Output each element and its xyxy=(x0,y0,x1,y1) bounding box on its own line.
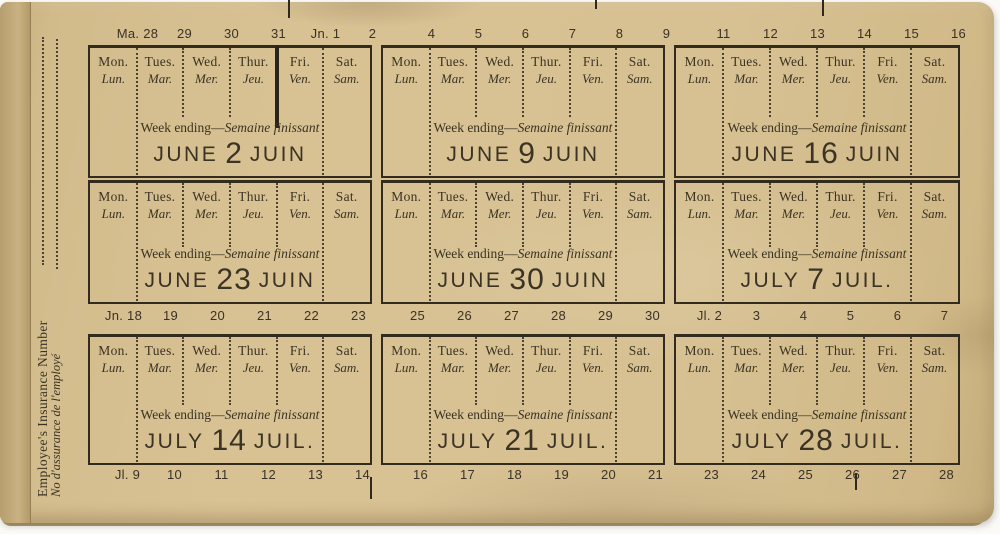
dotted-leader-line xyxy=(56,39,58,269)
week-ending-month-en: JULY xyxy=(438,430,498,453)
day-name-en: Tues. xyxy=(430,343,477,359)
insurance-number-label-fr: No d'assurance de l'employé xyxy=(50,261,63,497)
week-ending-label: Week ending—Semaine finissantJUNE16JUIN xyxy=(707,120,927,171)
week-ending-month-en: JUNE xyxy=(438,269,503,292)
day-name-fr: Lun. xyxy=(90,71,137,87)
week-ending-date: JUNE2JUIN xyxy=(121,137,339,171)
date-label: 20 xyxy=(585,467,632,487)
date-label: 12 xyxy=(747,26,794,46)
day-name-fr: Jeu. xyxy=(817,71,864,87)
date-label: 30 xyxy=(629,308,676,328)
week-ending-date: JUNE16JUIN xyxy=(707,137,927,171)
day-name-en: Mon. xyxy=(676,189,723,205)
date-label: 22 xyxy=(288,308,335,328)
date-label: 20 xyxy=(194,308,241,328)
date-label: 7 xyxy=(921,308,968,328)
day-name-en: Fri. xyxy=(570,343,617,359)
week-ending-month-en: JUNE xyxy=(153,143,218,166)
day-name-en: Fri. xyxy=(864,343,911,359)
date-label: 14 xyxy=(841,26,888,46)
day-name-fr: Ven. xyxy=(570,206,617,222)
week-block-4: Mon.Lun.Tues.Mar.Wed.Mer.Thur.Jeu.Fri.Ve… xyxy=(88,180,372,304)
date-label: Jn. 1 xyxy=(302,26,349,46)
date-label: 4 xyxy=(408,26,455,46)
day-name-en: Thur. xyxy=(230,54,277,70)
day-name-fr: Sam. xyxy=(323,71,370,87)
day-name-en: Wed. xyxy=(183,54,230,70)
day-name-en: Thur. xyxy=(230,189,277,205)
week-ending-caption: Week ending—Semaine finissant xyxy=(414,120,632,136)
week-ending-caption-fr: Semaine finissant xyxy=(518,246,613,261)
week-ending-caption: Week ending—Semaine finissant xyxy=(121,120,339,136)
date-label: 5 xyxy=(455,26,502,46)
week-ending-caption-en: Week ending xyxy=(141,407,212,422)
day-name-fr: Lun. xyxy=(676,206,723,222)
day-name-en: Thur. xyxy=(230,343,277,359)
day-name-fr: Lun. xyxy=(676,71,723,87)
date-label: 17 xyxy=(444,467,491,487)
day-name-fr: Sam. xyxy=(616,206,663,222)
date-strip-bottom-segment-1: Jl. 91011121314 xyxy=(104,467,386,487)
week-ending-month-en: JULY xyxy=(732,430,792,453)
date-label: 3 xyxy=(733,308,780,328)
date-label: 26 xyxy=(829,467,876,487)
date-label: 19 xyxy=(147,308,194,328)
day-name-fr: Lun. xyxy=(383,360,430,376)
day-name-fr: Lun. xyxy=(90,206,137,222)
day-name-fr: Mer. xyxy=(770,360,817,376)
day-name-en: Tues. xyxy=(723,343,770,359)
date-label: 16 xyxy=(397,467,444,487)
date-label: 16 xyxy=(935,26,982,46)
week-ending-caption-en: Week ending xyxy=(728,246,799,261)
date-label: Jl. 9 xyxy=(104,467,151,487)
date-label: 6 xyxy=(502,26,549,46)
day-name-fr: Mar. xyxy=(723,71,770,87)
week-block-8: Mon.Lun.Tues.Mar.Wed.Mer.Thur.Jeu.Fri.Ve… xyxy=(381,334,665,465)
date-label: 2 xyxy=(349,26,396,46)
date-strip-top-segment-2: 456789 xyxy=(408,26,690,46)
week-ending-day: 9 xyxy=(518,137,536,170)
week-ending-label: Week ending—Semaine finissantJULY14JUIL. xyxy=(121,407,339,458)
week-ending-day: 16 xyxy=(803,137,838,170)
day-name-fr: Mar. xyxy=(430,206,477,222)
day-name-en: Sat. xyxy=(616,54,663,70)
week-ending-month-fr: JUIL. xyxy=(832,269,894,292)
week-ending-month-en: JULY xyxy=(145,430,205,453)
day-name-fr: Jeu. xyxy=(230,206,277,222)
week-ending-caption-dash: — xyxy=(798,407,812,422)
day-name-en: Tues. xyxy=(137,343,184,359)
day-name-en: Wed. xyxy=(476,343,523,359)
week-ending-day: 23 xyxy=(216,263,251,296)
week-ending-month-en: JUNE xyxy=(145,269,210,292)
day-name-fr: Sam. xyxy=(616,71,663,87)
week-ending-caption-dash: — xyxy=(798,120,812,135)
week-ending-day: 30 xyxy=(509,263,544,296)
day-name-en: Wed. xyxy=(770,189,817,205)
date-label: 21 xyxy=(241,308,288,328)
date-label: 29 xyxy=(161,26,208,46)
day-name-fr: Ven. xyxy=(864,71,911,87)
week-ending-day: 21 xyxy=(504,424,539,457)
week-ending-caption: Week ending—Semaine finissant xyxy=(707,407,927,423)
day-name-fr: Ven. xyxy=(277,206,324,222)
date-label: 26 xyxy=(441,308,488,328)
day-name-en: Sat. xyxy=(616,189,663,205)
week-ending-label: Week ending—Semaine finissantJUNE2JUIN xyxy=(121,120,339,171)
week-ending-month-en: JUNE xyxy=(732,143,797,166)
date-label: 29 xyxy=(582,308,629,328)
date-label: 6 xyxy=(874,308,921,328)
week-ending-caption: Week ending—Semaine finissant xyxy=(707,120,927,136)
week-ending-caption-fr: Semaine finissant xyxy=(225,407,320,422)
week-ending-caption-dash: — xyxy=(798,246,812,261)
day-name-en: Wed. xyxy=(476,189,523,205)
day-name-en: Mon. xyxy=(90,54,137,70)
day-name-en: Thur. xyxy=(817,54,864,70)
month-boundary-line xyxy=(275,46,279,128)
week-ending-caption-dash: — xyxy=(504,120,518,135)
day-name-fr: Ven. xyxy=(864,206,911,222)
date-strip-top-segment-3: 111213141516 xyxy=(700,26,982,46)
day-name-en: Thur. xyxy=(523,189,570,205)
day-name-fr: Mer. xyxy=(183,360,230,376)
day-name-fr: Ven. xyxy=(277,71,324,87)
day-name-en: Wed. xyxy=(183,189,230,205)
day-name-fr: Sam. xyxy=(911,360,958,376)
week-ending-day: 7 xyxy=(807,263,825,296)
week-ending-date: JUNE23JUIN xyxy=(121,263,339,297)
week-ending-caption-dash: — xyxy=(211,120,225,135)
date-strip-middle-segment-1: Jn. 181920212223 xyxy=(100,308,382,328)
week-ending-caption: Week ending—Semaine finissant xyxy=(414,407,632,423)
day-name-en: Mon. xyxy=(90,189,137,205)
week-ending-day: 28 xyxy=(798,424,833,457)
day-name-fr: Lun. xyxy=(383,206,430,222)
week-block-3: Mon.Lun.Tues.Mar.Wed.Mer.Thur.Jeu.Fri.Ve… xyxy=(674,45,960,178)
date-label: 15 xyxy=(888,26,935,46)
date-label: 25 xyxy=(394,308,441,328)
date-label: 21 xyxy=(632,467,679,487)
registration-tick xyxy=(822,0,824,16)
week-ending-caption-en: Week ending xyxy=(434,407,505,422)
week-ending-month-fr: JUIL. xyxy=(547,430,609,453)
day-name-fr: Sam. xyxy=(911,206,958,222)
date-label: 12 xyxy=(245,467,292,487)
week-ending-day: 2 xyxy=(225,137,243,170)
week-ending-caption-dash: — xyxy=(211,246,225,261)
day-name-en: Wed. xyxy=(183,343,230,359)
week-ending-label: Week ending—Semaine finissantJULY28JUIL. xyxy=(707,407,927,458)
day-name-fr: Mer. xyxy=(183,71,230,87)
date-strip-bottom-segment-3: 232425262728 xyxy=(688,467,970,487)
week-ending-caption-fr: Semaine finissant xyxy=(812,407,907,422)
day-name-fr: Lun. xyxy=(90,360,137,376)
date-label: 8 xyxy=(596,26,643,46)
week-ending-month-fr: JUIN xyxy=(552,269,609,292)
week-ending-date: JULY21JUIL. xyxy=(414,424,632,458)
week-ending-date: JULY28JUIL. xyxy=(707,424,927,458)
week-block-1: Mon.Lun.Tues.Mar.Wed.Mer.Thur.Jeu.Fri.Ve… xyxy=(88,45,372,178)
day-name-fr: Sam. xyxy=(911,71,958,87)
week-ending-caption-fr: Semaine finissant xyxy=(518,407,613,422)
day-name-en: Mon. xyxy=(383,189,430,205)
date-label: 13 xyxy=(794,26,841,46)
day-name-en: Tues. xyxy=(723,189,770,205)
week-ending-caption-dash: — xyxy=(211,407,225,422)
day-name-en: Wed. xyxy=(476,54,523,70)
week-ending-caption-en: Week ending xyxy=(141,246,212,261)
week-ending-caption-en: Week ending xyxy=(728,120,799,135)
week-ending-caption-en: Week ending xyxy=(434,120,505,135)
date-label: 14 xyxy=(339,467,386,487)
day-name-en: Sat. xyxy=(911,189,958,205)
week-ending-label: Week ending—Semaine finissantJULY21JUIL. xyxy=(414,407,632,458)
day-name-en: Fri. xyxy=(864,54,911,70)
day-name-fr: Jeu. xyxy=(230,71,277,87)
week-ending-caption-fr: Semaine finissant xyxy=(225,246,320,261)
week-ending-label: Week ending—Semaine finissantJUNE23JUIN xyxy=(121,246,339,297)
week-ending-caption-en: Week ending xyxy=(434,246,505,261)
day-name-en: Thur. xyxy=(817,189,864,205)
day-name-en: Mon. xyxy=(676,343,723,359)
day-name-fr: Mar. xyxy=(137,360,184,376)
scanned-insurance-book-page: Employee's Insurance Number No d'assuran… xyxy=(0,0,1000,534)
week-ending-day: 14 xyxy=(211,424,246,457)
date-label: 28 xyxy=(923,467,970,487)
date-strip-middle-segment-2: 252627282930 xyxy=(394,308,676,328)
week-ending-caption-fr: Semaine finissant xyxy=(225,120,320,135)
day-name-en: Sat. xyxy=(323,343,370,359)
week-ending-caption: Week ending—Semaine finissant xyxy=(707,246,927,262)
day-name-en: Tues. xyxy=(430,54,477,70)
day-name-fr: Ven. xyxy=(570,71,617,87)
date-label: 25 xyxy=(782,467,829,487)
day-name-fr: Mer. xyxy=(476,360,523,376)
date-label: 11 xyxy=(198,467,245,487)
week-ending-month-fr: JUIN xyxy=(250,143,307,166)
day-name-fr: Mer. xyxy=(476,206,523,222)
date-label: 30 xyxy=(208,26,255,46)
week-block-5: Mon.Lun.Tues.Mar.Wed.Mer.Thur.Jeu.Fri.Ve… xyxy=(381,180,665,304)
day-name-en: Wed. xyxy=(770,343,817,359)
day-name-en: Tues. xyxy=(137,189,184,205)
day-name-en: Fri. xyxy=(277,189,324,205)
date-label: 23 xyxy=(688,467,735,487)
date-label: 23 xyxy=(335,308,382,328)
week-block-9: Mon.Lun.Tues.Mar.Wed.Mer.Thur.Jeu.Fri.Ve… xyxy=(674,334,960,465)
week-ending-caption: Week ending—Semaine finissant xyxy=(414,246,632,262)
day-name-en: Thur. xyxy=(817,343,864,359)
week-block-2: Mon.Lun.Tues.Mar.Wed.Mer.Thur.Jeu.Fri.Ve… xyxy=(381,45,665,178)
insurance-number-label-en: Employee's Insurance Number xyxy=(36,261,50,497)
week-ending-caption-en: Week ending xyxy=(141,120,212,135)
date-label: Jn. 18 xyxy=(100,308,147,328)
date-label: Jl. 2 xyxy=(686,308,733,328)
day-name-en: Tues. xyxy=(723,54,770,70)
date-label: 10 xyxy=(151,467,198,487)
day-name-fr: Mer. xyxy=(183,206,230,222)
day-name-en: Mon. xyxy=(676,54,723,70)
week-ending-month-fr: JUIL. xyxy=(254,430,316,453)
date-label: 9 xyxy=(643,26,690,46)
registration-tick xyxy=(288,0,290,18)
day-name-en: Sat. xyxy=(323,189,370,205)
week-ending-date: JULY14JUIL. xyxy=(121,424,339,458)
day-name-en: Wed. xyxy=(770,54,817,70)
day-name-fr: Jeu. xyxy=(817,360,864,376)
day-name-en: Sat. xyxy=(911,54,958,70)
day-name-en: Mon. xyxy=(383,343,430,359)
day-name-en: Fri. xyxy=(277,343,324,359)
insurance-number-label: Employee's Insurance Number No d'assuran… xyxy=(36,261,63,497)
week-ending-date: JUNE9JUIN xyxy=(414,137,632,171)
week-ending-date: JULY7JUIL. xyxy=(707,263,927,297)
week-ending-label: Week ending—Semaine finissantJUNE30JUIN xyxy=(414,246,632,297)
day-name-en: Sat. xyxy=(616,343,663,359)
week-ending-month-fr: JUIL. xyxy=(841,430,903,453)
week-ending-label: Week ending—Semaine finissantJULY7JUIL. xyxy=(707,246,927,297)
day-name-en: Mon. xyxy=(90,343,137,359)
day-name-fr: Mar. xyxy=(723,360,770,376)
day-name-fr: Sam. xyxy=(323,206,370,222)
day-name-en: Sat. xyxy=(911,343,958,359)
day-name-fr: Mar. xyxy=(137,71,184,87)
day-name-fr: Mer. xyxy=(770,71,817,87)
day-name-fr: Sam. xyxy=(616,360,663,376)
week-block-7: Mon.Lun.Tues.Mar.Wed.Mer.Thur.Jeu.Fri.Ve… xyxy=(88,334,372,465)
date-label: 27 xyxy=(876,467,923,487)
week-ending-month-fr: JUIN xyxy=(259,269,316,292)
date-strip-top-segment-1: Ma. 28293031Jn. 12 xyxy=(114,26,396,46)
week-ending-caption-fr: Semaine finissant xyxy=(518,120,613,135)
date-label: 7 xyxy=(549,26,596,46)
registration-tick xyxy=(595,0,597,9)
day-name-fr: Mer. xyxy=(770,206,817,222)
date-label: 19 xyxy=(538,467,585,487)
week-ending-caption: Week ending—Semaine finissant xyxy=(121,407,339,423)
day-name-en: Fri. xyxy=(864,189,911,205)
week-ending-caption: Week ending—Semaine finissant xyxy=(121,246,339,262)
week-ending-label: Week ending—Semaine finissantJUNE9JUIN xyxy=(414,120,632,171)
date-label: 28 xyxy=(535,308,582,328)
day-name-fr: Lun. xyxy=(676,360,723,376)
day-name-fr: Jeu. xyxy=(817,206,864,222)
day-name-en: Tues. xyxy=(430,189,477,205)
day-name-en: Fri. xyxy=(570,189,617,205)
date-label: 24 xyxy=(735,467,782,487)
week-ending-date: JUNE30JUIN xyxy=(414,263,632,297)
date-label: 31 xyxy=(255,26,302,46)
week-ending-caption-fr: Semaine finissant xyxy=(812,246,907,261)
date-label: 18 xyxy=(491,467,538,487)
day-name-fr: Ven. xyxy=(570,360,617,376)
day-name-en: Thur. xyxy=(523,343,570,359)
day-name-fr: Jeu. xyxy=(523,360,570,376)
day-name-fr: Sam. xyxy=(323,360,370,376)
day-name-fr: Ven. xyxy=(864,360,911,376)
day-name-fr: Ven. xyxy=(277,360,324,376)
week-ending-caption-en: Week ending xyxy=(728,407,799,422)
day-name-fr: Jeu. xyxy=(523,71,570,87)
day-name-en: Mon. xyxy=(383,54,430,70)
week-ending-month-fr: JUIN xyxy=(543,143,600,166)
week-ending-caption-dash: — xyxy=(504,246,518,261)
day-name-fr: Mar. xyxy=(137,206,184,222)
date-label: 13 xyxy=(292,467,339,487)
day-name-fr: Mer. xyxy=(476,71,523,87)
day-name-en: Fri. xyxy=(277,54,324,70)
date-label: 5 xyxy=(827,308,874,328)
day-name-fr: Jeu. xyxy=(230,360,277,376)
day-name-en: Tues. xyxy=(137,54,184,70)
day-name-fr: Lun. xyxy=(383,71,430,87)
day-name-fr: Mar. xyxy=(430,360,477,376)
week-ending-caption-fr: Semaine finissant xyxy=(812,120,907,135)
week-ending-caption-dash: — xyxy=(504,407,518,422)
date-label: Ma. 28 xyxy=(114,26,161,46)
booklet-spine-edge xyxy=(0,2,31,523)
week-ending-month-fr: JUIN xyxy=(846,143,903,166)
date-strip-bottom-segment-2: 161718192021 xyxy=(397,467,679,487)
dotted-leader-line xyxy=(42,37,44,265)
day-name-en: Thur. xyxy=(523,54,570,70)
date-strip-middle-segment-3: Jl. 234567 xyxy=(686,308,968,328)
date-label: 4 xyxy=(780,308,827,328)
day-name-en: Fri. xyxy=(570,54,617,70)
day-name-fr: Mar. xyxy=(430,71,477,87)
day-name-en: Sat. xyxy=(323,54,370,70)
date-label: 27 xyxy=(488,308,535,328)
date-label: 11 xyxy=(700,26,747,46)
week-ending-month-en: JULY xyxy=(741,269,801,292)
day-name-fr: Jeu. xyxy=(523,206,570,222)
week-ending-month-en: JUNE xyxy=(446,143,511,166)
week-block-6: Mon.Lun.Tues.Mar.Wed.Mer.Thur.Jeu.Fri.Ve… xyxy=(674,180,960,304)
day-name-fr: Mar. xyxy=(723,206,770,222)
